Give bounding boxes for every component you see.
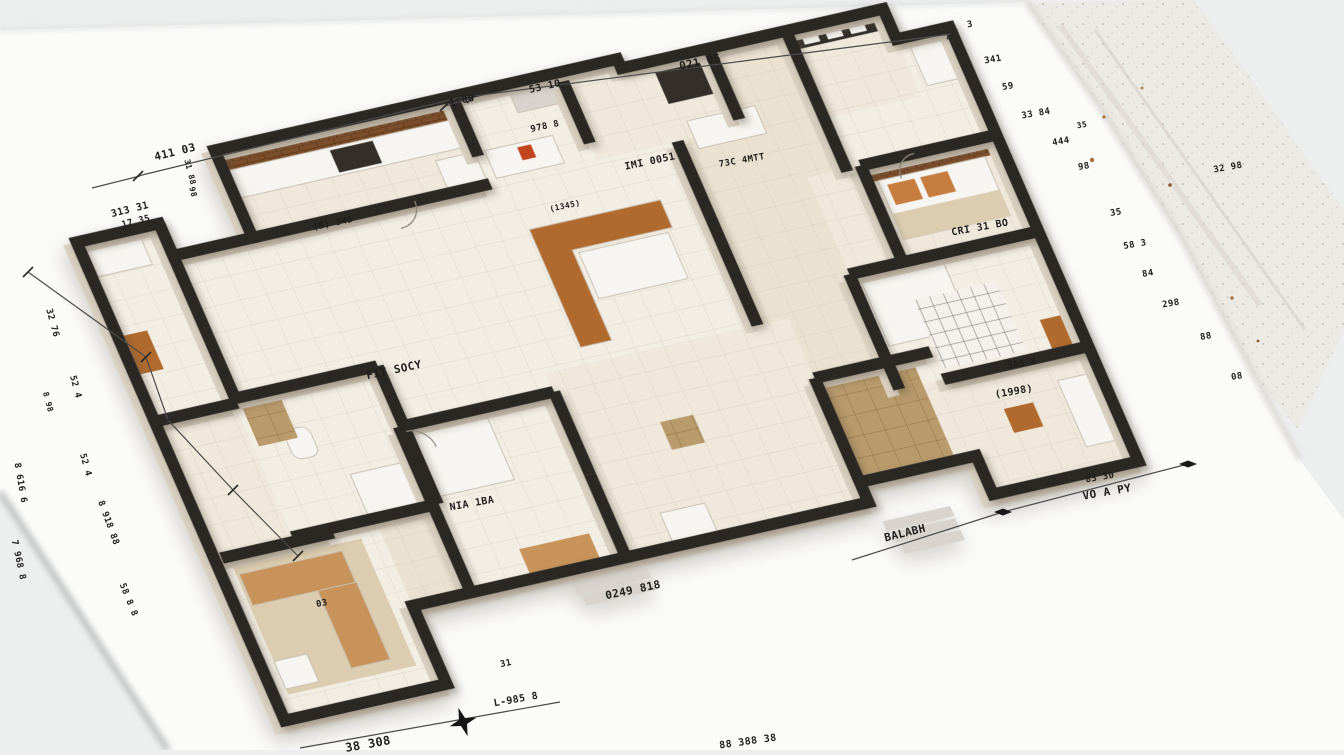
- blueprint-scene: 411 031 0053 10021 05313 3117 3531 88989…: [0, 0, 1344, 750]
- scene-canvas: [0, 0, 1344, 750]
